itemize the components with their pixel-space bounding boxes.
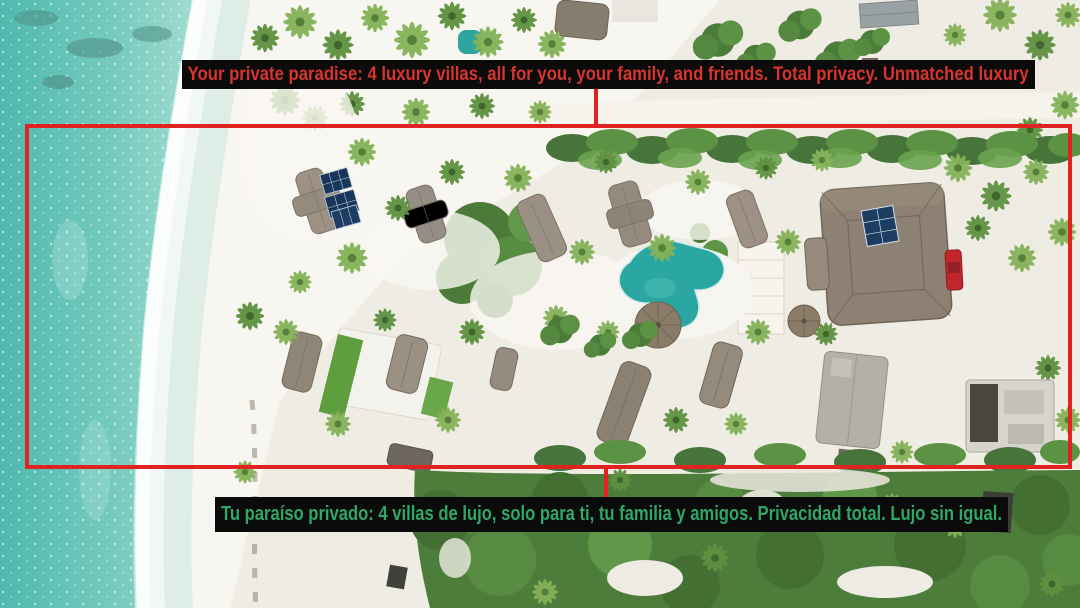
- headline-text-english: Your private paradise: 4 luxury villas, …: [188, 64, 1029, 86]
- headline-banner-spanish: Tu paraíso privado: 4 villas de lujo, so…: [215, 497, 1008, 532]
- annotated-aerial-photo: Your private paradise: 4 luxury villas, …: [0, 0, 1080, 608]
- neighbor-thatch-roof: [554, 0, 609, 41]
- dark-shed: [386, 565, 408, 590]
- callout-connector-top: [594, 88, 598, 125]
- headline-banner-english: Your private paradise: 4 luxury villas, …: [182, 60, 1035, 89]
- property-highlight-box: [25, 124, 1072, 469]
- callout-connector-bottom: [604, 468, 608, 498]
- headline-text-spanish: Tu paraíso privado: 4 villas de lujo, so…: [221, 503, 1002, 526]
- seaweed-patch: [67, 38, 123, 58]
- vegetation-bottom-band: [386, 468, 1080, 608]
